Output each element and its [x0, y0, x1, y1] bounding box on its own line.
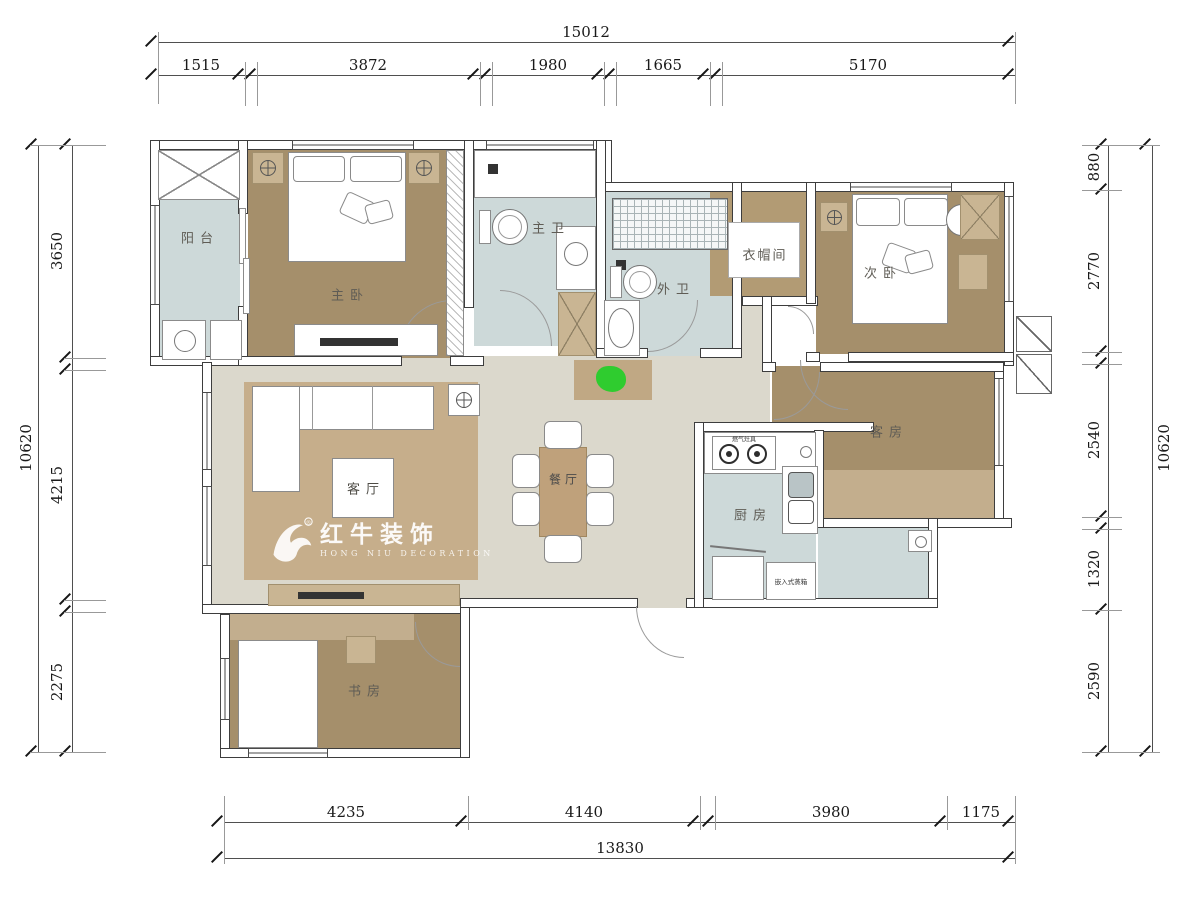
toilet-tank: [610, 266, 622, 298]
green-marker: [596, 366, 626, 392]
dimension-tick: [1095, 510, 1107, 522]
extension-line: [1082, 752, 1160, 753]
extension-line: [1082, 190, 1122, 191]
dimension-tick: [1002, 815, 1014, 827]
dimension-text: 3650: [48, 232, 66, 270]
sink-basin: [788, 500, 814, 524]
extension-line: [257, 62, 258, 106]
steamer-label: 嵌入式蒸箱: [775, 576, 808, 586]
dimension-text: 4235: [327, 803, 365, 821]
extension-line: [700, 796, 701, 830]
dimension-line: [1152, 145, 1153, 752]
wall: [238, 356, 402, 366]
dimension-tick: [1139, 138, 1151, 150]
dimension-tick: [145, 68, 157, 80]
washer-drum-icon: [174, 330, 196, 352]
dimension-tick: [59, 363, 71, 375]
burner-icon: [747, 444, 767, 464]
extension-line: [1015, 796, 1016, 864]
bath-cabinet: [474, 150, 596, 198]
extension-line: [1082, 610, 1122, 611]
dimension-text: 4140: [565, 803, 603, 821]
nightstand: [820, 202, 848, 232]
dimension-tick: [59, 605, 71, 617]
fridge: [712, 556, 764, 600]
washing-machine: [162, 320, 206, 360]
tv-cabinet: [268, 584, 460, 606]
room-label-outer-bath: 外卫: [651, 279, 695, 298]
window: [292, 140, 414, 150]
wardrobe: [446, 150, 464, 356]
dining-table: [539, 447, 587, 537]
dimension-tick: [59, 593, 71, 605]
room-label-guest-room: 客房: [864, 422, 908, 441]
wall: [460, 598, 638, 608]
dimension-text: 3980: [812, 803, 850, 821]
chair: [544, 421, 582, 449]
sink-basin: [788, 472, 814, 498]
watermark-brand: 红牛装饰: [320, 523, 494, 546]
extension-line: [64, 370, 106, 371]
dimension-line: [224, 822, 1015, 823]
dimension-text: 2770: [1085, 252, 1103, 290]
dimension-text: 1515: [182, 56, 220, 74]
nightstand: [408, 152, 440, 184]
wall: [694, 422, 704, 608]
window: [220, 658, 230, 720]
room-label-living-room: 客厅: [341, 479, 385, 498]
extension-line: [224, 796, 225, 864]
dimension-text: 5170: [849, 56, 887, 74]
side-table: [448, 384, 480, 416]
column: [558, 292, 596, 356]
extension-line: [1082, 145, 1160, 146]
dimension-text: 1175: [962, 803, 1000, 821]
floor-plan: ® 红牛装饰 HONG NIU DECORATION 阳台 主卧 主卫 外卫 衣…: [0, 0, 1200, 900]
bull-logo-icon: ®: [268, 514, 314, 566]
balcony-cabinet: [158, 150, 240, 200]
service-fixture: [908, 530, 932, 552]
extension-line: [64, 358, 106, 359]
door-arc: [636, 606, 684, 658]
dimension-tick: [59, 351, 71, 363]
dimension-tick: [145, 35, 157, 47]
ac-unit: [1016, 354, 1052, 394]
toilet-tank: [479, 210, 491, 244]
window: [994, 378, 1004, 466]
room-label-cloakroom: 衣帽间: [740, 245, 787, 264]
extension-line: [722, 62, 723, 106]
wall: [848, 352, 1014, 362]
wall: [450, 356, 484, 366]
desk-chair: [346, 636, 376, 664]
dimension-text: 1665: [644, 56, 682, 74]
extension-line: [710, 62, 711, 106]
extension-line: [245, 62, 246, 106]
dimension-line: [158, 75, 1015, 76]
dimension-tick: [702, 815, 714, 827]
dimension-tick: [1095, 522, 1107, 534]
window: [202, 486, 212, 566]
shower-area: [612, 198, 728, 250]
dimension-line: [1108, 145, 1109, 752]
extension-line: [492, 62, 493, 106]
extension-line: [1082, 364, 1122, 365]
chair: [586, 492, 614, 526]
wall: [812, 518, 1012, 528]
sink-icon: [564, 242, 588, 266]
extension-line: [480, 62, 481, 106]
extension-line: [1082, 517, 1122, 518]
dimension-text: 10620: [17, 424, 35, 472]
dimension-text: 1980: [529, 56, 567, 74]
tatami-bed: [238, 640, 318, 748]
wall: [806, 182, 816, 304]
faucet-icon: [488, 164, 498, 174]
extension-line: [616, 62, 617, 106]
pillow: [856, 198, 900, 226]
lamp-icon: [827, 210, 842, 225]
dimension-tick: [1139, 745, 1151, 757]
dimension-tick: [1095, 357, 1107, 369]
extension-line: [1082, 529, 1122, 530]
lamp-icon: [456, 392, 472, 408]
dimension-line: [224, 858, 1015, 859]
room-label-master-bedroom: 主卧: [325, 285, 369, 304]
window: [486, 140, 594, 150]
lamp-icon: [416, 160, 432, 176]
wall: [460, 604, 470, 758]
study-top-strip: [230, 614, 414, 640]
nightstand: [252, 152, 284, 184]
extension-line: [64, 600, 106, 601]
dimension-tick: [211, 815, 223, 827]
sofa-seam: [372, 386, 373, 430]
dimension-tick: [232, 68, 244, 80]
chair: [512, 454, 540, 488]
window: [248, 748, 328, 758]
sink-icon: [608, 308, 634, 348]
dimension-tick: [1095, 745, 1107, 757]
pillow: [904, 198, 948, 226]
wall: [700, 348, 742, 358]
ac-unit: [1016, 316, 1052, 352]
dimension-text: 880: [1085, 153, 1103, 182]
burner-icon: [719, 444, 739, 464]
lamp-icon: [260, 160, 276, 176]
window: [202, 392, 212, 470]
dimension-tick: [211, 851, 223, 863]
extension-line: [1015, 32, 1016, 104]
dimension-text: 2540: [1085, 421, 1103, 459]
dimension-text: 15012: [562, 23, 610, 41]
tv-icon: [320, 338, 398, 346]
dimension-tick: [1002, 851, 1014, 863]
dimension-text: 2590: [1085, 662, 1103, 700]
dimension-text: 13830: [596, 839, 644, 857]
door-arc: [788, 306, 814, 334]
dimension-tick: [59, 745, 71, 757]
dimension-line: [38, 145, 39, 752]
extension-line: [468, 796, 469, 830]
extension-line: [947, 796, 948, 830]
side-cabinet: [958, 254, 988, 290]
dimension-text: 2275: [48, 663, 66, 701]
drain-icon: [915, 536, 927, 548]
extension-line: [604, 62, 605, 106]
room-label-kitchen: 厨房: [728, 505, 772, 524]
room-label-dining-room: 餐厅: [545, 471, 581, 488]
hob-control-icon: [800, 446, 812, 458]
wall: [694, 422, 874, 432]
sofa-chaise: [252, 386, 300, 492]
sliding-door: [243, 258, 250, 314]
dimension-tick: [1002, 68, 1014, 80]
svg-text:®: ®: [306, 519, 312, 526]
extension-line: [30, 145, 106, 146]
column: [960, 194, 1000, 240]
wall: [464, 140, 474, 308]
extension-line: [158, 32, 159, 104]
balcony-base-cabinet: [210, 320, 242, 360]
dimension-tick: [697, 68, 709, 80]
extension-line: [30, 752, 106, 753]
chair: [544, 535, 582, 563]
dimension-line: [72, 145, 73, 752]
wall: [762, 362, 776, 372]
dimension-tick: [1095, 183, 1107, 195]
extension-line: [1082, 352, 1122, 353]
dimension-tick: [467, 68, 479, 80]
sofa-seam: [312, 386, 313, 430]
room-label-study: 书房: [342, 681, 386, 700]
dimension-tick: [591, 68, 603, 80]
watermark: ® 红牛装饰 HONG NIU DECORATION: [268, 505, 443, 575]
dimension-tick: [1095, 603, 1107, 615]
dimension-text: 3872: [349, 56, 387, 74]
dimension-text: 4215: [48, 466, 66, 504]
dimension-text: 10620: [1155, 424, 1173, 472]
window: [850, 182, 952, 192]
room-label-balcony: 阳台: [175, 228, 219, 247]
chair: [586, 454, 614, 488]
toilet-icon: [492, 209, 528, 245]
pillow: [293, 156, 345, 182]
extension-line: [64, 612, 106, 613]
dimension-tick: [1095, 138, 1107, 150]
extension-line: [715, 796, 716, 830]
guest-room-bed-strip: [820, 470, 994, 520]
dimension-tick: [455, 815, 467, 827]
window: [1004, 196, 1014, 302]
dimension-line: [158, 42, 1015, 43]
watermark-subtitle: HONG NIU DECORATION: [320, 549, 494, 558]
dimension-tick: [687, 815, 699, 827]
tv-icon: [298, 592, 364, 599]
dimension-tick: [59, 138, 71, 150]
dimension-tick: [1002, 35, 1014, 47]
dimension-text: 1320: [1085, 550, 1103, 588]
room-label-master-bath: 主卫: [526, 218, 570, 237]
stove-label: 燃气灶具: [732, 435, 756, 444]
dimension-tick: [25, 745, 37, 757]
chair: [512, 492, 540, 526]
pillow: [350, 156, 402, 182]
sliding-door: [239, 208, 246, 264]
wall: [762, 296, 772, 372]
dimension-tick: [934, 815, 946, 827]
room-label-second-bedroom: 次卧: [858, 263, 902, 282]
dimension-tick: [25, 138, 37, 150]
window: [150, 205, 160, 305]
dimension-tick: [1095, 345, 1107, 357]
